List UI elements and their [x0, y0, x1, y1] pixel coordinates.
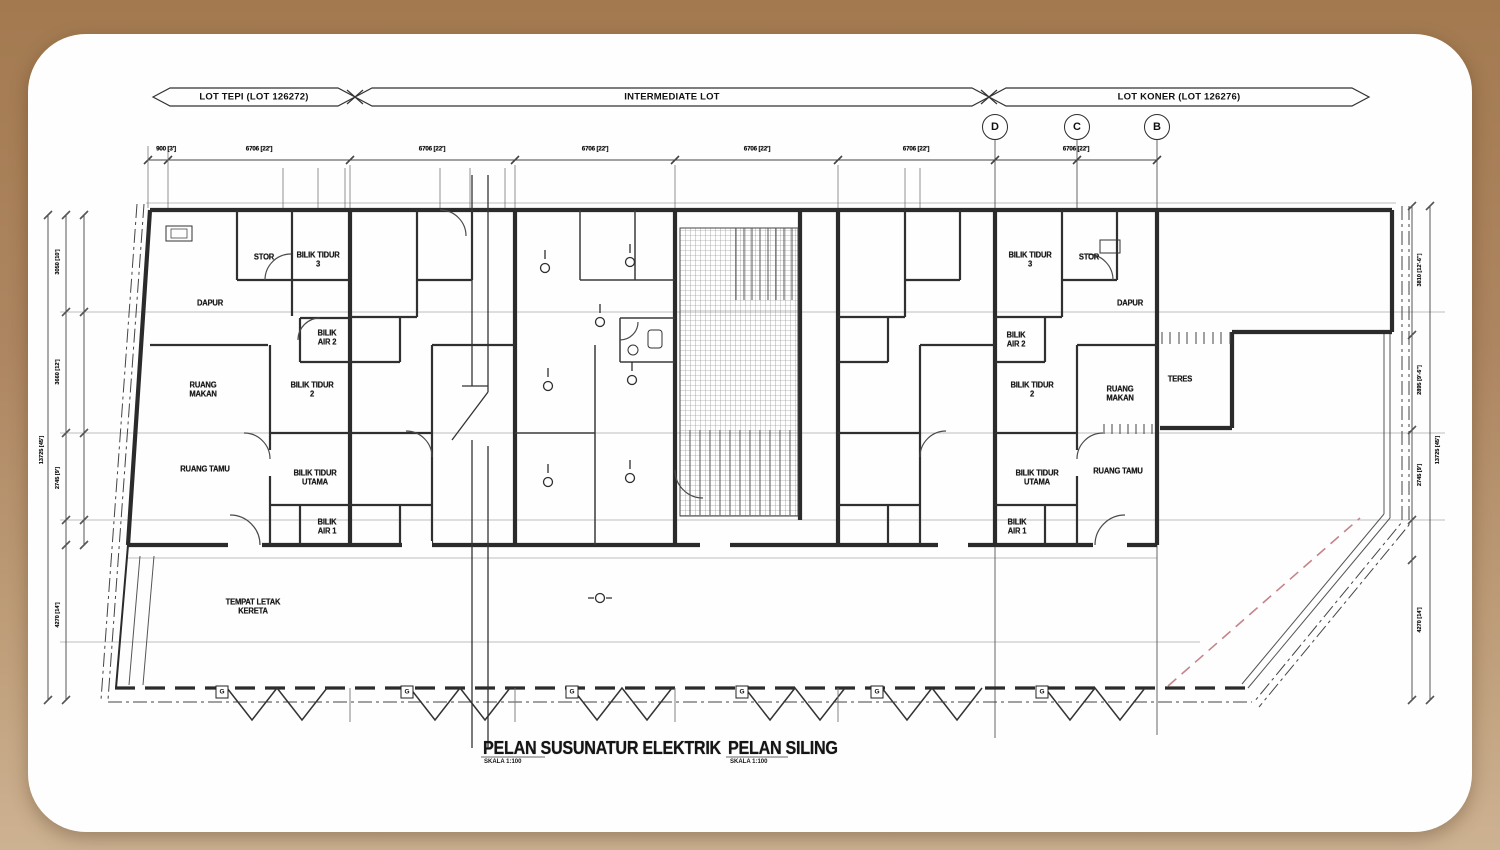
grid-bubble-c: C: [1064, 114, 1090, 140]
left-dim-overall-label: 13725 [45']: [39, 436, 45, 464]
room-label-stor-right: STOR: [1079, 254, 1099, 263]
room-label-bilik-air-1-right: BILIK AIR 1: [1008, 518, 1027, 535]
gutter-box: G: [1036, 686, 1049, 699]
top-dim-label: 6706 [22']: [903, 146, 929, 153]
room-label-ruang-tamu-right: RUANG TAMU: [1093, 468, 1142, 477]
gutter-box: G: [871, 686, 884, 699]
lot-banner-middle-label: INTERMEDIATE LOT: [624, 92, 719, 103]
lot-banner-right-label: LOT KONER (LOT 126276): [1118, 92, 1241, 103]
top-dim-label: 6706 [22']: [744, 146, 770, 153]
left-dim-label: 3050 [10']: [55, 249, 61, 274]
top-dim-label: 6706 [22']: [582, 146, 608, 153]
gutter-box: G: [736, 686, 749, 699]
room-label-dapur-right: DAPUR: [1117, 300, 1143, 309]
room-label-teres: TERES: [1168, 376, 1192, 385]
room-label-ruang-makan-left: RUANG MAKAN: [189, 381, 216, 398]
gutter-box: G: [566, 686, 579, 699]
room-label-bilik-air-2-right: BILIK AIR 2: [1007, 331, 1026, 348]
gutter-box: G: [216, 686, 229, 699]
lot-banner-left-label: LOT TEPI (LOT 126272): [199, 92, 308, 103]
room-label-tempat-letak-kereta: TEMPAT LETAK KERETA: [226, 598, 281, 615]
title-scale-elektrik: SKALA 1:100: [484, 759, 521, 765]
top-dim-label: 6706 [22']: [246, 146, 272, 153]
grid-bubble-d: D: [982, 114, 1008, 140]
title-pelan-susunatur-elektrik: PELAN SUSUNATUR ELEKTRIK: [483, 738, 721, 759]
right-dim-label: 2745 [9']: [1417, 464, 1423, 486]
left-dim-label: 4270 [14']: [55, 602, 61, 627]
title-scale-siling: SKALA 1:100: [730, 759, 767, 765]
left-dim-label: 3660 [12']: [55, 359, 61, 384]
room-label-ruang-tamu-left: RUANG TAMU: [180, 466, 229, 475]
room-label-bilik-tidur-utama-right: BILIK TIDUR UTAMA: [1015, 469, 1058, 486]
room-label-ruang-makan-right: RUANG MAKAN: [1106, 385, 1133, 402]
room-label-bilik-tidur-utama-left: BILIK TIDUR UTAMA: [293, 469, 336, 486]
room-label-bilik-tidur-2-left: BILIK TIDUR 2: [290, 381, 333, 398]
slide-background: LOT TEPI (LOT 126272) INTERMEDIATE LOT L…: [0, 0, 1500, 850]
room-label-bilik-air-1-left: BILIK AIR 1: [318, 518, 337, 535]
label-layer: LOT TEPI (LOT 126272) INTERMEDIATE LOT L…: [0, 0, 1500, 850]
left-dim-label: 2745 [9']: [55, 467, 61, 489]
room-label-bilik-air-2-left: BILIK AIR 2: [318, 329, 337, 346]
room-label-bilik-tidur-3-right: BILIK TIDUR 3: [1008, 251, 1051, 268]
room-label-bilik-tidur-3-left: BILIK TIDUR 3: [296, 251, 339, 268]
top-dim-label: 900 [3']: [156, 146, 176, 153]
right-dim-overall-label: 13725 [45']: [1435, 436, 1441, 464]
top-dim-label: 6706 [22']: [1063, 146, 1089, 153]
room-label-dapur-left: DAPUR: [197, 300, 223, 309]
room-label-stor-left: STOR: [254, 254, 274, 263]
grid-bubble-b: B: [1144, 114, 1170, 140]
right-dim-label: 2895 [9'-6"]: [1417, 365, 1423, 395]
title-pelan-siling: PELAN SILING: [728, 738, 838, 759]
gutter-box: G: [401, 686, 414, 699]
right-dim-label: 3810 [12'-6"]: [1417, 254, 1423, 287]
room-label-bilik-tidur-2-right: BILIK TIDUR 2: [1010, 381, 1053, 398]
top-dim-label: 6706 [22']: [419, 146, 445, 153]
right-dim-label: 4270 [14']: [1417, 607, 1423, 632]
